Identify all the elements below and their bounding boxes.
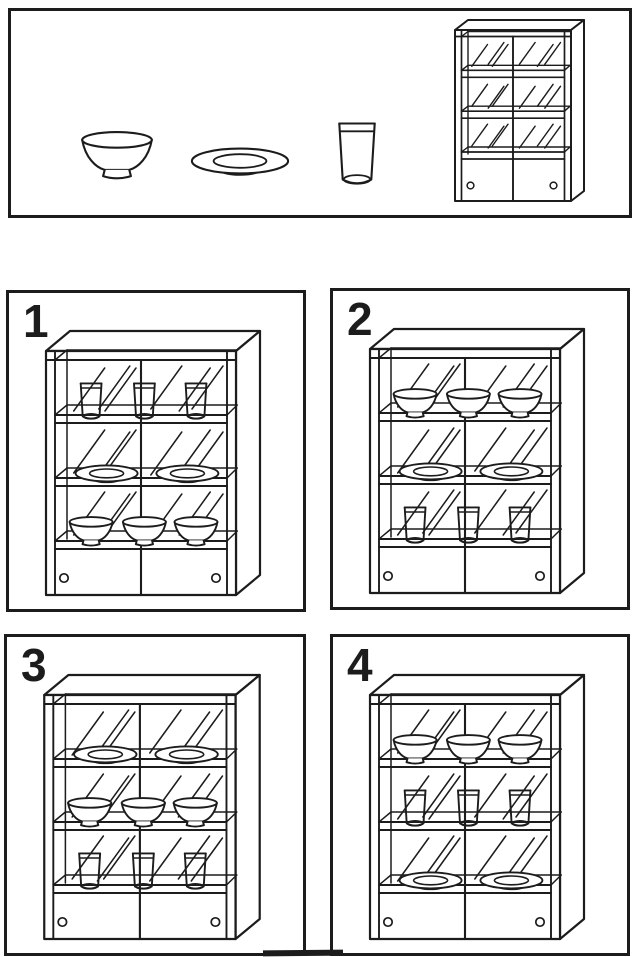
plate-item bbox=[192, 149, 288, 175]
option-drawing-2 bbox=[333, 291, 627, 607]
cabinet bbox=[455, 20, 584, 201]
option-number-1: 1 bbox=[23, 297, 49, 345]
plate-item bbox=[480, 872, 542, 889]
plate-item bbox=[400, 872, 462, 889]
reference-drawing bbox=[11, 11, 629, 215]
plate-item bbox=[74, 746, 136, 763]
option-drawing-1 bbox=[9, 293, 303, 609]
option-number-2: 2 bbox=[347, 295, 373, 343]
glass-item bbox=[339, 124, 374, 184]
option-panel-2[interactable]: 2 bbox=[330, 288, 630, 610]
reference-panel bbox=[8, 8, 632, 218]
option-number-3: 3 bbox=[21, 641, 47, 689]
option-drawing-3 bbox=[7, 637, 303, 953]
scan-mark bbox=[263, 950, 343, 957]
option-panel-1[interactable]: 1 bbox=[6, 290, 306, 612]
cabinet bbox=[370, 329, 584, 593]
option-panel-4[interactable]: 4 bbox=[330, 634, 630, 956]
bowl-item bbox=[82, 132, 152, 178]
worksheet-page: 1 2 3 4 bbox=[0, 0, 640, 957]
plate-item bbox=[76, 465, 138, 482]
option-drawing-4 bbox=[333, 637, 627, 953]
plate-item bbox=[400, 463, 462, 480]
option-number-4: 4 bbox=[347, 641, 373, 689]
plate-item bbox=[155, 746, 217, 763]
plate-item bbox=[156, 465, 218, 482]
plate-item bbox=[480, 463, 542, 480]
cabinet bbox=[44, 675, 259, 939]
cabinet bbox=[370, 675, 584, 939]
option-panel-3[interactable]: 3 bbox=[4, 634, 306, 956]
cabinet bbox=[46, 331, 260, 595]
